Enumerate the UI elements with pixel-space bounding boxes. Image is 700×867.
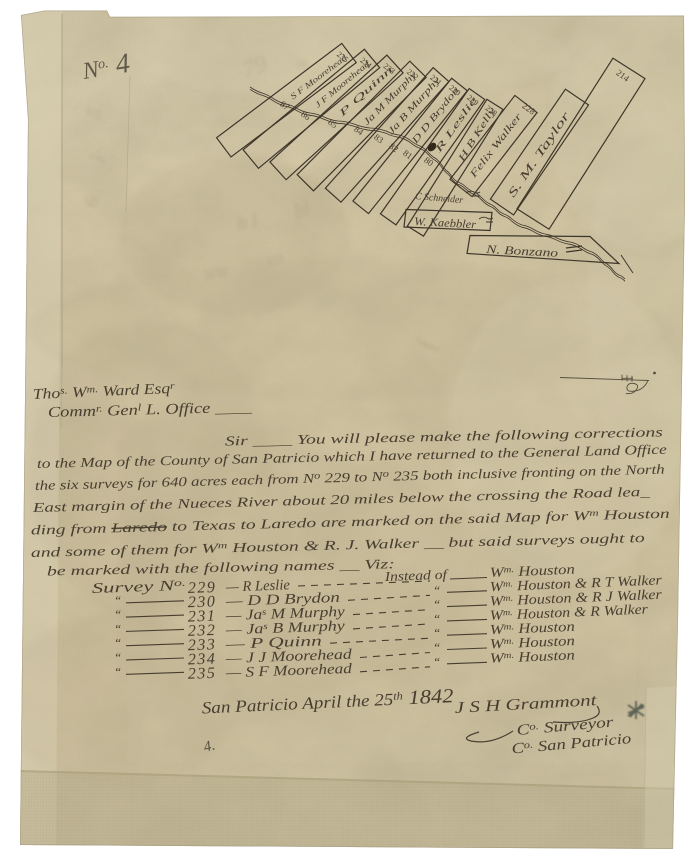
svg-text:“: “ bbox=[114, 592, 121, 607]
svg-text:Wm. Houston: Wm. Houston bbox=[490, 647, 576, 666]
svg-text:“: “ bbox=[433, 582, 440, 597]
svg-text:“: “ bbox=[114, 635, 121, 650]
svg-text:“: “ bbox=[114, 607, 121, 622]
svg-text:“: “ bbox=[114, 621, 121, 636]
svg-text:“: “ bbox=[114, 650, 121, 665]
svg-text:“: “ bbox=[433, 597, 440, 612]
svg-text:235: 235 bbox=[188, 665, 217, 683]
svg-text:h l: h l bbox=[235, 210, 260, 235]
svg-text:J·: J· bbox=[84, 148, 110, 165]
svg-text:“: “ bbox=[433, 611, 440, 626]
svg-text:Survey No.: Survey No. bbox=[92, 578, 187, 597]
svg-text:“: “ bbox=[433, 654, 440, 669]
svg-text:“: “ bbox=[433, 625, 440, 640]
svg-text:“: “ bbox=[114, 664, 121, 679]
svg-text:“: “ bbox=[433, 640, 440, 655]
